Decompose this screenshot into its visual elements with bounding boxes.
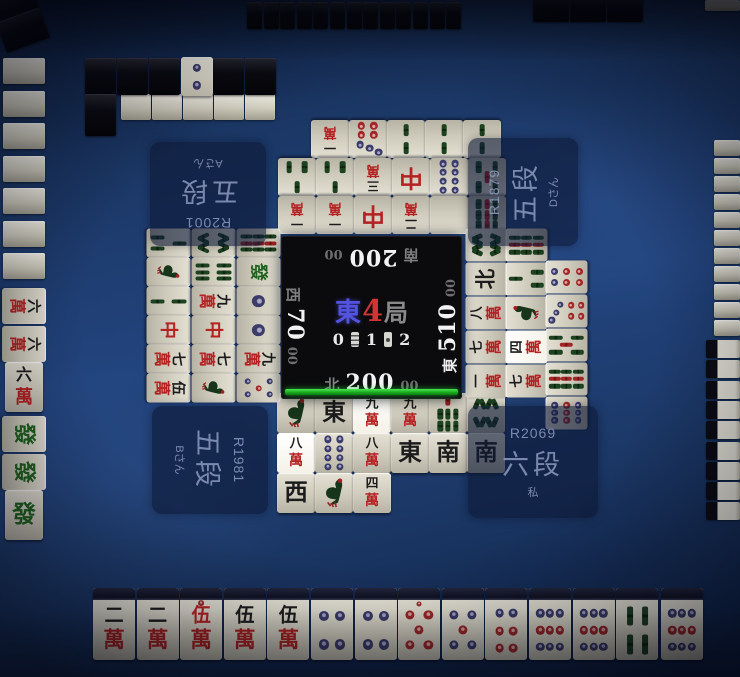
discard-tile-8m: 八萬 (277, 433, 315, 473)
opponent-hand-tile-side (706, 462, 740, 480)
wall-tile-edge (714, 158, 740, 174)
hand-tile-4p[interactable] (355, 588, 397, 660)
dead-wall-lower-tile (183, 94, 213, 120)
player-rating: R2069 (510, 425, 556, 441)
dead-wall-lower-tile (245, 94, 275, 120)
player-name: Bさん (173, 445, 189, 474)
opponent-hand-tile-edge (3, 58, 45, 84)
discard-tile-2m: 二萬 (392, 196, 430, 234)
discard-tile-7p (349, 120, 387, 158)
opponent-hand-tile-back (313, 2, 328, 29)
player-rank: 六段 (502, 443, 564, 482)
score-left-small: 00 (284, 347, 299, 365)
opponent-hand-tile-back (430, 2, 445, 29)
dead-wall-lower-tile (214, 94, 244, 120)
opponent-hand-tile-back (330, 2, 345, 29)
discard-tile-5m: 伍萬 (146, 373, 190, 402)
center-info-panel: 南 200 00 北 200 00 西 70 00 東 510 00 東 4 局… (281, 236, 462, 399)
player-rating: R1879 (486, 169, 502, 215)
dead-wall-tile-back (213, 58, 244, 95)
wall-tile-edge (714, 284, 740, 300)
discard-tile-8m: 八萬 (465, 296, 507, 329)
hand-tile-0m[interactable]: 伍萬 (180, 588, 222, 660)
opponent-hand-tile-back (280, 2, 295, 29)
dead-wall-lower-tile (121, 94, 151, 120)
player-name: 私 (528, 484, 539, 500)
player-rating: R2001 (185, 216, 231, 232)
opponent-hand-tile-side (706, 360, 740, 378)
opponent-hand-tile-edge (3, 156, 45, 182)
counter-middle: 1 (366, 330, 377, 349)
discard-tile-7m: 七萬 (465, 330, 507, 363)
discard-tile-1s (191, 373, 235, 402)
player-name: Aさん (193, 157, 222, 173)
hand-tile-9p[interactable] (573, 588, 615, 660)
dora-indicator-tile-2p (181, 57, 213, 96)
player-rank: 五段 (504, 161, 543, 223)
opponent-hand-tile-back (380, 2, 395, 29)
hand-tile-5p[interactable] (442, 588, 484, 660)
discard-tile-3s (278, 158, 316, 196)
player-rating: R1981 (232, 437, 248, 483)
discard-tile-6p (545, 260, 587, 293)
counter-right: 2 (399, 330, 410, 349)
player-name: Dさん (545, 177, 561, 207)
opponent-hand-tile-side (706, 340, 740, 358)
discard-tile-4m: 四萬 (505, 330, 547, 363)
opponent-hand-tile-side (706, 421, 740, 439)
discard-tile-5p (236, 373, 280, 402)
discard-tile-1m: 一萬 (465, 364, 507, 397)
dead-wall-tile-back (85, 94, 116, 136)
discard-tile-7m: 七萬 (505, 364, 547, 397)
meld-tile-6m: 六萬 (2, 288, 46, 324)
dead-wall-tile-back (149, 58, 180, 95)
discard-tile-1m: 一萬 (311, 120, 349, 158)
dead-wall-lower-tile (152, 94, 182, 120)
wind-indicator-right: 東 (439, 358, 460, 373)
discard-tile-1s (146, 257, 190, 286)
discard-tile-5s (545, 328, 587, 361)
discard-tile-8p (430, 158, 468, 196)
discard-tile-1m: 一萬 (316, 196, 354, 234)
discard-tile-RD: 中 (354, 196, 392, 234)
wall-tile-edge (714, 266, 740, 282)
discard-tile-RD: 中 (191, 315, 235, 344)
round-suffix: 局 (384, 293, 408, 328)
hand-tile-4p[interactable] (311, 588, 353, 660)
discard-tile-1s (505, 296, 547, 329)
discard-tile-WH (430, 196, 468, 234)
opponent-hand-tile-back (396, 2, 411, 29)
wall-tile-edge (714, 320, 740, 336)
discard-tile-8p (315, 433, 353, 473)
meld-tile-GD: 發 (2, 416, 46, 452)
discard-tile-GD: 發 (236, 257, 280, 286)
opponent-hand-tile-edge (3, 253, 45, 279)
dead-wall-tile-back (245, 58, 276, 95)
player-plate-top: R2001 五段 Aさん (150, 142, 266, 246)
discard-tile-2s (387, 120, 425, 158)
discard-tile-S: 南 (429, 433, 467, 473)
discard-tile-1p (236, 315, 280, 344)
opponent-hand-tile-back (413, 2, 428, 29)
opponent-hand-tile-back (363, 2, 378, 29)
wall-tile-edge (714, 140, 740, 156)
turn-timer-bar (285, 389, 458, 395)
discard-tile-8m: 八萬 (353, 433, 391, 473)
hand-tile-2m[interactable]: 二萬 (137, 588, 179, 660)
discard-tile-N: 北 (465, 262, 507, 295)
player-plate-left: R1981 五段 Bさん (152, 406, 268, 514)
dead-wall-tile-back (117, 58, 148, 95)
opponent-hand-tile-side (706, 381, 740, 399)
discard-tile-3m: 三萬 (354, 158, 392, 196)
hand-tile-6p[interactable] (485, 588, 527, 660)
opponent-hand-tile-back (446, 2, 461, 29)
hand-tile-2m[interactable]: 二萬 (93, 588, 135, 660)
wall-tile-back (607, 0, 643, 22)
discard-tile-9m: 九萬 (391, 393, 429, 433)
wall-tile-edge (714, 212, 740, 228)
wind-indicator-top: 南 (404, 245, 419, 266)
discard-tile-1p (236, 286, 280, 315)
discard-tile-3s (505, 262, 547, 295)
discard-tile-E: 東 (315, 393, 353, 433)
meld-tile-6m: 六萬 (5, 362, 43, 412)
round-number: 4 (362, 294, 383, 329)
discard-tile-9m: 九萬 (236, 344, 280, 373)
discard-tile-9m: 九萬 (353, 393, 391, 433)
meld-tile-GD: 發 (2, 454, 46, 490)
hand-tile-5m[interactable]: 伍萬 (267, 588, 309, 660)
meld-tile-6m: 六萬 (2, 326, 46, 362)
discard-tile-7m: 七萬 (191, 344, 235, 373)
discard-tile-2s (146, 286, 190, 315)
opponent-hand-tile-side (706, 502, 740, 520)
wall-tile-edge (714, 194, 740, 210)
opponent-hand-tile-edge (3, 123, 45, 149)
discard-tile-7p (545, 294, 587, 327)
round-display: 東 4 局 (281, 292, 462, 329)
stick-counters: 0 1 2 (281, 330, 462, 349)
opponent-hand-tile-side (706, 482, 740, 500)
opponent-hand-tile-edge (3, 188, 45, 214)
discard-tile-6s (191, 257, 235, 286)
wall-tile-edge (705, 0, 740, 11)
mahjong-table: 一萬三萬中一萬一萬中二萬 東九萬九萬八萬八萬東南南西四萬 中七萬伍萬九萬中七萬發… (0, 0, 740, 677)
thousand-stick-icon (384, 332, 392, 347)
score-top: 200 (349, 244, 398, 270)
hand-tile-0p[interactable] (398, 588, 440, 660)
round-wind: 東 (335, 292, 361, 329)
opponent-hand-tile-edge (3, 221, 45, 247)
opponent-hand-tile-side (706, 442, 740, 460)
dead-wall-tile-back (85, 58, 116, 95)
player-plate-right: R1879 五段 Dさん (468, 138, 578, 246)
discard-tile-9s (545, 362, 587, 395)
hand-tile-5m[interactable]: 伍萬 (224, 588, 266, 660)
discard-tile-W: 西 (277, 473, 315, 513)
wall-tile-edge (714, 230, 740, 246)
meld-tile-GD: 發 (5, 490, 43, 540)
discard-tile-RD: 中 (392, 158, 430, 196)
wall-tile-back (533, 0, 569, 22)
wall-tile-edge (714, 248, 740, 264)
discard-tile-3s (316, 158, 354, 196)
hundred-stick-icon (351, 332, 359, 347)
discard-tile-7m: 七萬 (146, 344, 190, 373)
opponent-hand-tile-edge (3, 91, 45, 117)
opponent-hand-tile-back (297, 2, 312, 29)
discard-tile-E: 東 (391, 433, 429, 473)
counter-left: 0 (333, 330, 344, 349)
opponent-hand-tile-side (706, 401, 740, 419)
wall-tile-back (570, 0, 606, 22)
player-plate-self: R2069 六段 私 (468, 406, 598, 518)
discard-tile-2s (425, 120, 463, 158)
discard-tile-9m: 九萬 (191, 286, 235, 315)
discard-tile-4m: 四萬 (353, 473, 391, 513)
opponent-hand-tile-back (247, 2, 262, 29)
wall-tile-edge (714, 176, 740, 192)
opponent-hand-tile-back (347, 2, 362, 29)
opponent-hand-tile-back (264, 2, 279, 29)
drawn-tile-9p[interactable] (661, 588, 703, 660)
player-rank: 五段 (177, 175, 239, 214)
wall-tile-edge (714, 302, 740, 318)
player-rank: 五段 (191, 429, 230, 491)
discard-tile-1s (315, 473, 353, 513)
hand-tile-9p[interactable] (529, 588, 571, 660)
discard-tile-1m: 一萬 (278, 196, 316, 234)
discard-tile-RD: 中 (146, 315, 190, 344)
score-top-small: 00 (324, 246, 342, 261)
hand-tile-4s[interactable] (616, 588, 658, 660)
